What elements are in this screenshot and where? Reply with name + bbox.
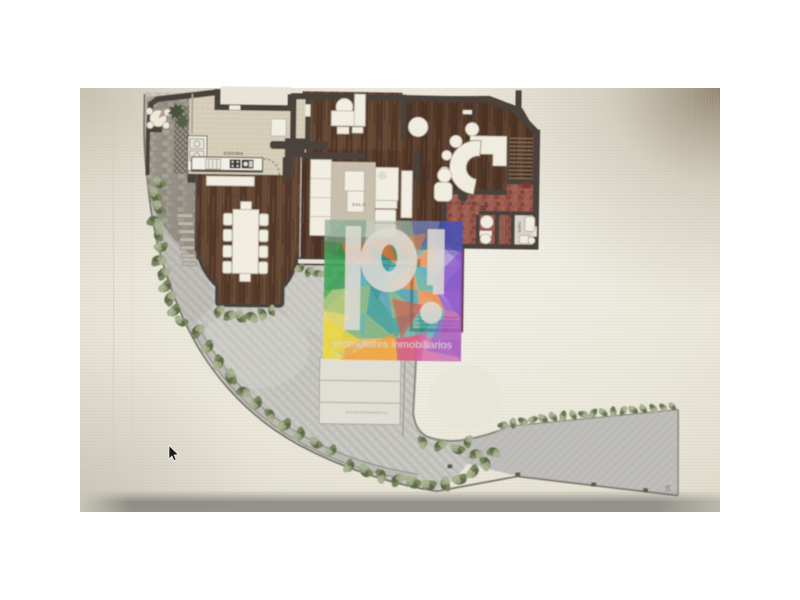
- svg-text:BAÑO: BAÑO: [517, 222, 522, 233]
- svg-text:ESTACIONAMIENTO: ESTACIONAMIENTO: [346, 409, 387, 415]
- svg-text:COMEDOR: COMEDOR: [227, 194, 254, 199]
- svg-text:promotores inmobiliarios: promotores inmobiliarios: [333, 338, 452, 352]
- svg-text:VESTIBULO: VESTIBULO: [454, 200, 480, 205]
- svg-text:SALA: SALA: [352, 202, 366, 207]
- svg-text:BAR: BAR: [482, 165, 491, 170]
- svg-text:ESTUDIO: ESTUDIO: [308, 100, 324, 104]
- svg-text:COCINA: COCINA: [224, 151, 244, 156]
